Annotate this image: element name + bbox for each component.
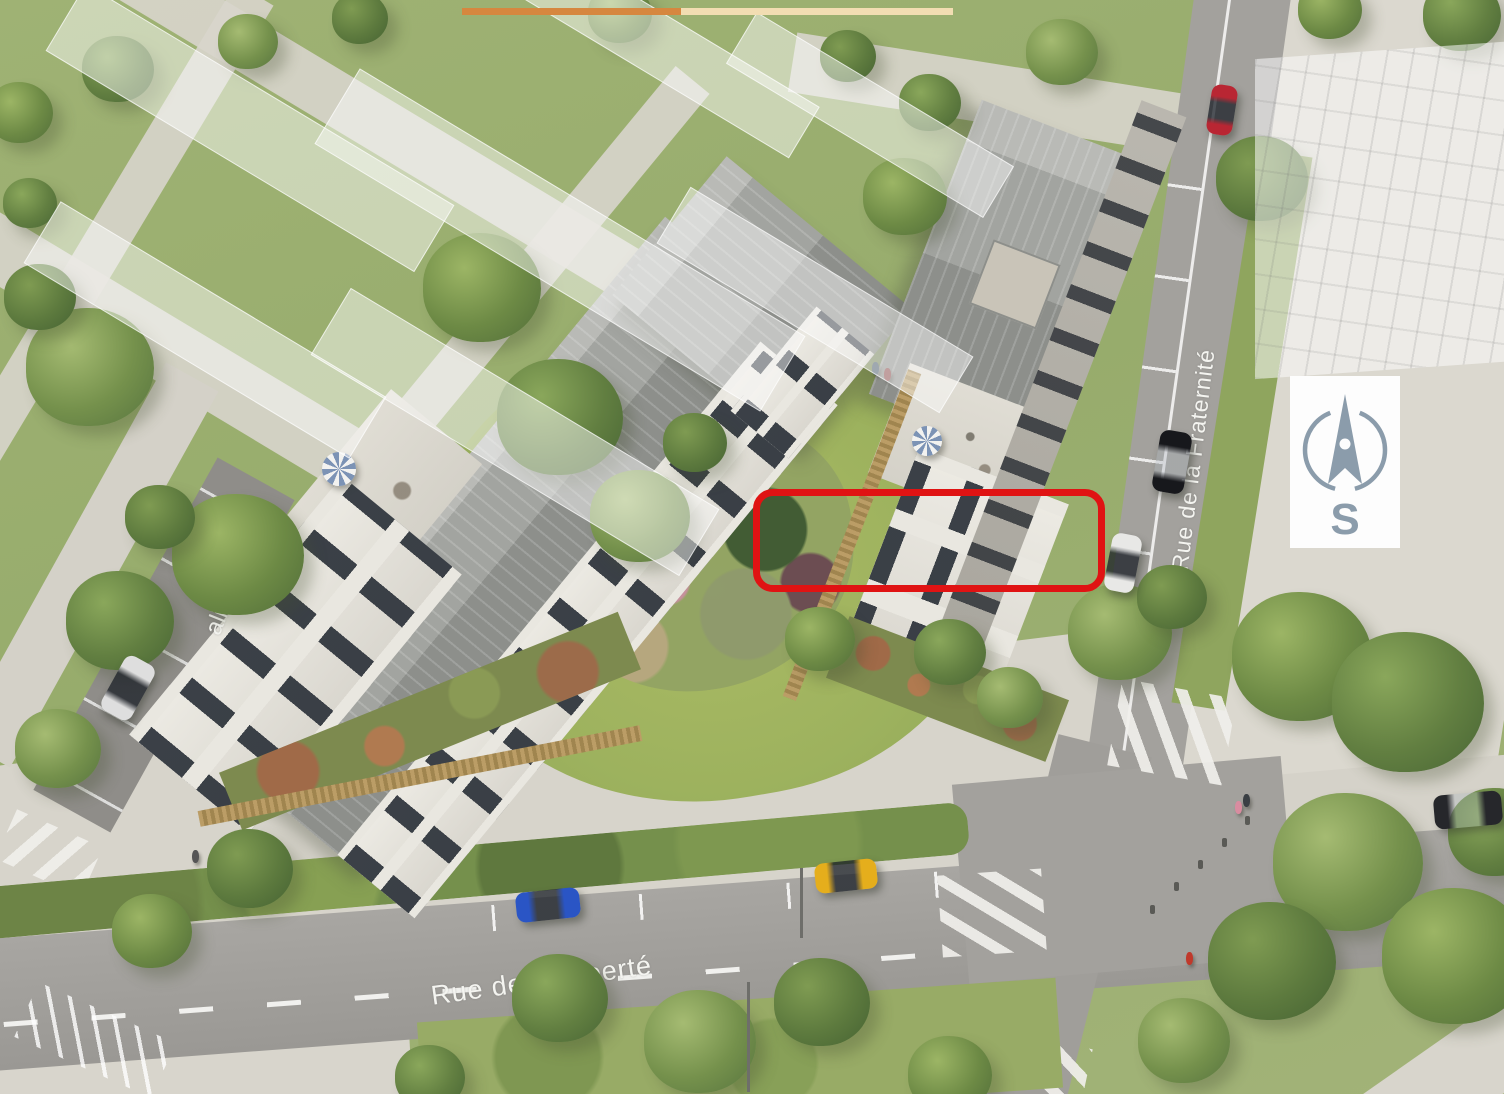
highlighted-apartment-outline bbox=[753, 489, 1105, 592]
ghost-building-block bbox=[24, 201, 387, 458]
roof-hatch bbox=[969, 239, 1061, 329]
tree bbox=[82, 36, 154, 102]
parasol bbox=[912, 426, 942, 456]
compass-icon bbox=[1290, 382, 1400, 512]
path-corner bbox=[1331, 968, 1504, 1094]
tree bbox=[588, 0, 652, 43]
tree bbox=[26, 308, 154, 426]
ghost-building-block bbox=[480, 0, 819, 158]
tree bbox=[899, 74, 961, 131]
top-bar-cream bbox=[681, 8, 953, 15]
tree bbox=[4, 264, 76, 330]
tree bbox=[218, 14, 278, 69]
ghost-building-block bbox=[46, 0, 455, 272]
tree bbox=[423, 233, 541, 342]
tree bbox=[1026, 19, 1098, 85]
tree bbox=[0, 82, 53, 143]
road-intersection bbox=[952, 756, 1298, 984]
tree bbox=[820, 30, 876, 82]
tree bbox=[3, 178, 57, 228]
footpath bbox=[0, 0, 670, 314]
aerial-site-render: Rue de la Liberté Rue de la Fraternité a… bbox=[0, 0, 1504, 1094]
tree bbox=[1138, 998, 1230, 1083]
ghost-building-wireframe bbox=[1255, 41, 1504, 379]
tree bbox=[332, 0, 388, 44]
compass-south-letter: S bbox=[1290, 498, 1400, 542]
parasol bbox=[322, 452, 356, 486]
compass-card: S bbox=[1290, 376, 1400, 548]
top-bar-orange bbox=[462, 8, 681, 15]
